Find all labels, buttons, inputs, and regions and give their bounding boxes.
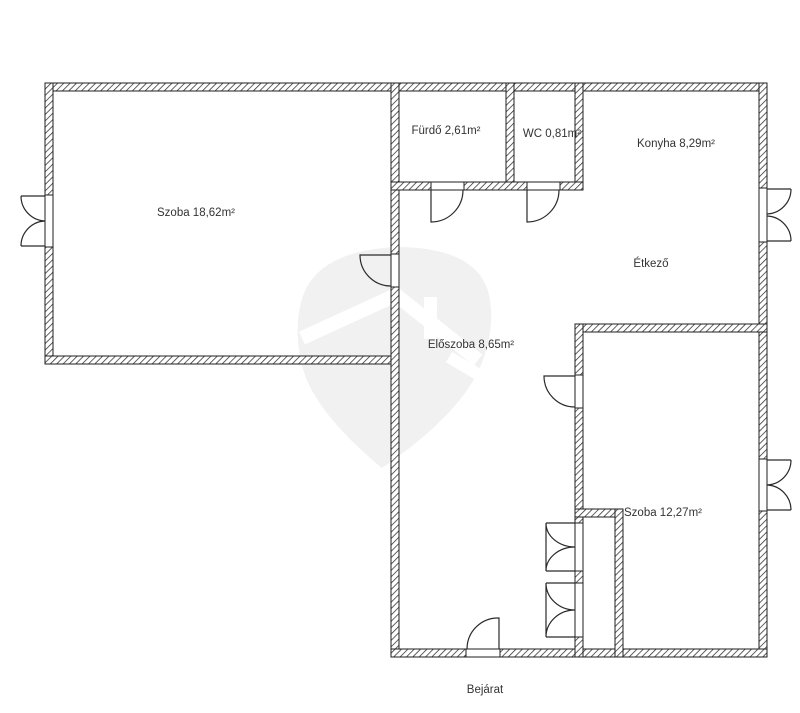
wall-top-outer [45, 83, 767, 91]
opening-entrance-door [466, 649, 500, 657]
wall-closet-right [615, 509, 623, 657]
opening-window-konyha [759, 188, 767, 242]
room-label-wc: WC 0,81m² [523, 128, 581, 140]
watermark-chimney [424, 297, 437, 339]
opening-window-szoba1 [45, 195, 53, 247]
wall-szoba2-top [575, 324, 767, 332]
room-label-szoba2: Szoba 12,27m² [624, 507, 702, 519]
opening-door-szoba2 [575, 375, 583, 408]
opening-closet-doors-lower [575, 583, 583, 637]
opening-door-wc [527, 182, 560, 190]
room-label-etkezo: Étkező [633, 257, 668, 270]
entrance-label: Bejárat [467, 684, 504, 696]
room-label-eloszoba: Előszoba 8,65m² [428, 339, 514, 351]
room-label-konyha: Konyha 8,29m² [637, 138, 715, 150]
wall-right-outer [759, 83, 767, 657]
opening-door-furdo [431, 182, 464, 190]
floorplan-canvas: Szoba 18,62m² Fürdő 2,61m² WC 0,81m² Kon… [0, 0, 800, 713]
wall-furdo-wc-divider [506, 83, 514, 190]
opening-door-szoba1 [391, 254, 399, 287]
wall-main-vertical [391, 83, 399, 657]
room-label-furdo: Fürdő 2,61m² [411, 125, 480, 137]
opening-window-szoba2 [759, 459, 767, 511]
room-label-szoba1: Szoba 18,62m² [157, 207, 235, 219]
opening-closet-doors-upper [575, 523, 583, 571]
wall-szoba1-bottom [45, 356, 399, 364]
floorplan-svg: Szoba 18,62m² Fürdő 2,61m² WC 0,81m² Kon… [0, 0, 800, 713]
